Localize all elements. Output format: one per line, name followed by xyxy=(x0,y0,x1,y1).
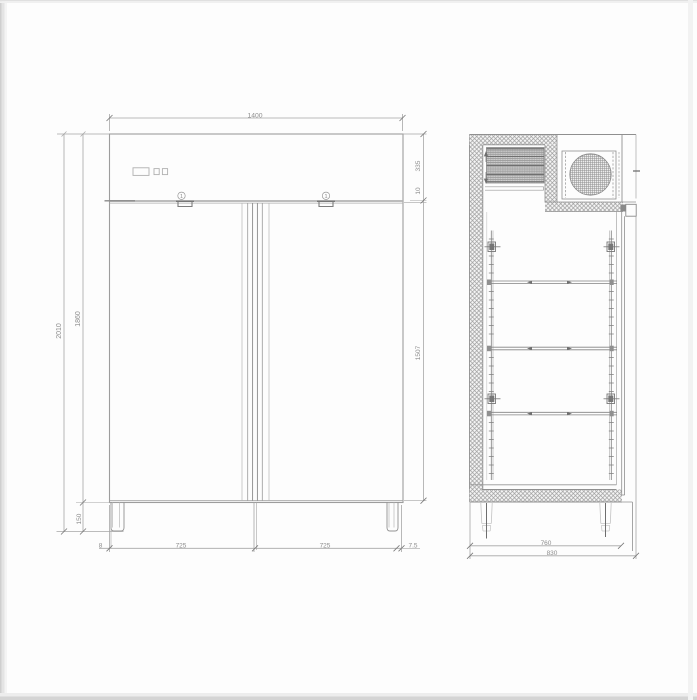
svg-text:1400: 1400 xyxy=(247,112,262,119)
svg-text:1507: 1507 xyxy=(415,345,422,360)
svg-text:335: 335 xyxy=(415,160,422,171)
svg-text:150: 150 xyxy=(76,513,83,524)
svg-text:725: 725 xyxy=(320,542,331,549)
svg-text:10: 10 xyxy=(415,187,422,195)
svg-text:1: 1 xyxy=(324,194,327,200)
svg-text:725: 725 xyxy=(176,542,187,549)
svg-text:7.5: 7.5 xyxy=(408,543,417,550)
svg-text:1: 1 xyxy=(180,194,183,200)
svg-text:8: 8 xyxy=(99,542,103,549)
svg-text:1860: 1860 xyxy=(75,311,82,327)
svg-text:760: 760 xyxy=(541,540,552,547)
svg-text:2010: 2010 xyxy=(56,323,63,339)
svg-text:830: 830 xyxy=(547,550,558,557)
